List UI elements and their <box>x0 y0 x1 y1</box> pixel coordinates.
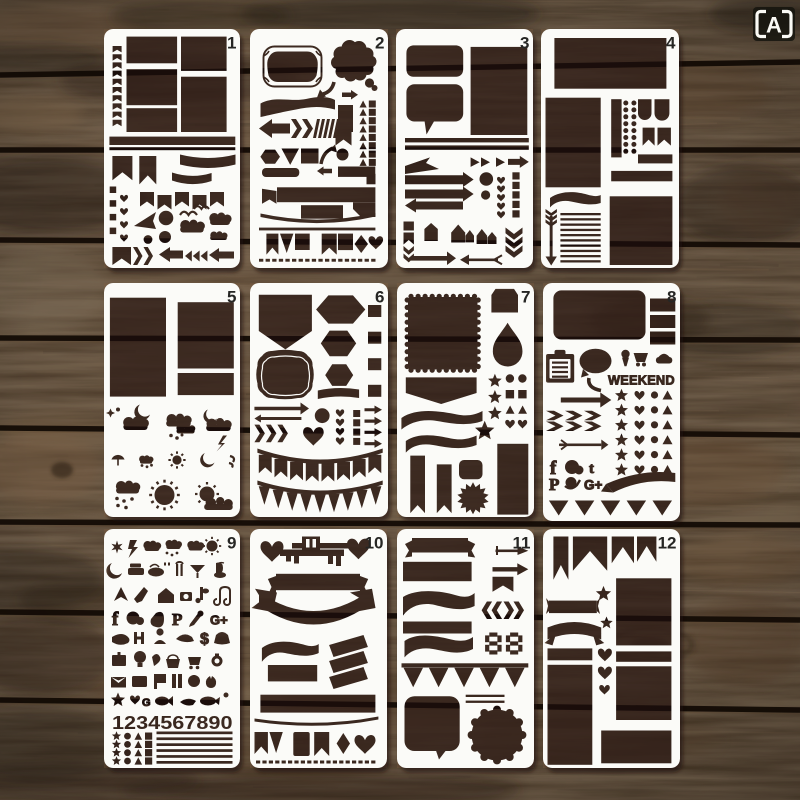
svg-text:10: 10 <box>365 534 384 553</box>
svg-text:9: 9 <box>227 534 236 553</box>
svg-text:2: 2 <box>375 34 384 53</box>
svg-text:3: 3 <box>520 34 529 53</box>
svg-text:5: 5 <box>227 288 236 307</box>
svg-text:A: A <box>766 13 782 38</box>
svg-text:6: 6 <box>375 288 384 307</box>
svg-text:1: 1 <box>227 34 236 53</box>
svg-text:12: 12 <box>658 534 677 553</box>
svg-text:4: 4 <box>666 34 676 53</box>
svg-text:8: 8 <box>667 288 676 307</box>
svg-text:11: 11 <box>513 534 531 553</box>
svg-text:7: 7 <box>521 288 530 307</box>
